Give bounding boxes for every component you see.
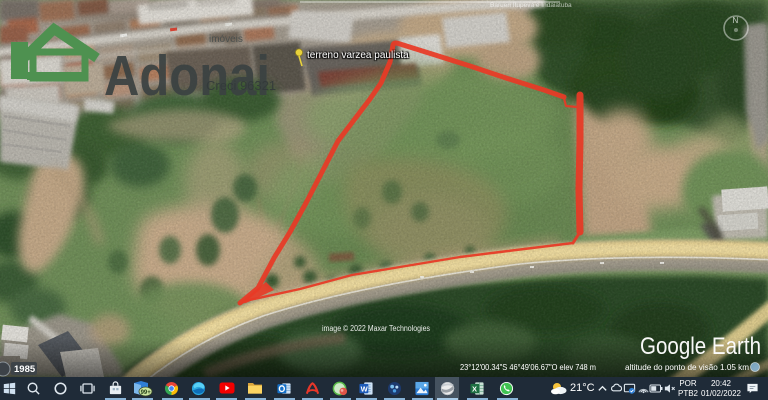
svg-text:N: N: [733, 16, 739, 25]
svg-text:1985: 1985: [14, 364, 36, 375]
svg-text:Adonai: Adonai: [104, 44, 270, 108]
svg-text:Creci 96321: Creci 96321: [206, 78, 276, 93]
svg-text:altitude do ponto de visão 1.: altitude do ponto de visão 1.05 km: [625, 362, 749, 372]
svg-text:terreno varzea paulista: terreno varzea paulista: [307, 50, 409, 61]
svg-text:23°12'00.34"S 46°49'06.67"O: 23°12'00.34"S 46°49'06.67"O elev 748 m: [460, 362, 596, 372]
svg-text:X: X: [472, 384, 477, 393]
svg-text:W: W: [361, 384, 369, 393]
svg-text:image © 2022 Maxar Technologie: image © 2022 Maxar Technologies: [322, 324, 430, 333]
svg-text:99+: 99+: [141, 390, 152, 396]
svg-text:Barueri Itupeva e Indaiatuba: Barueri Itupeva e Indaiatuba: [490, 2, 572, 9]
svg-text:Google Earth: Google Earth: [640, 333, 761, 360]
